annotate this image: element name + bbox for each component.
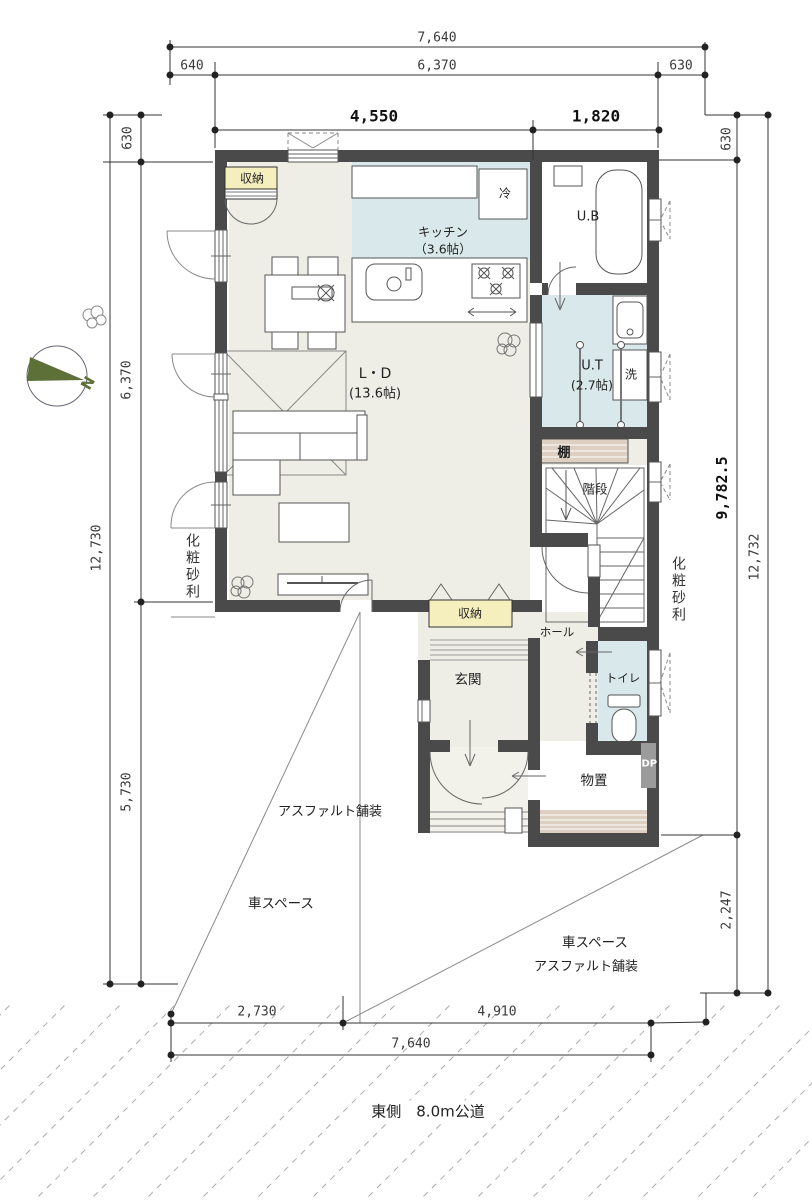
dim-left-top: 630 — [121, 126, 136, 149]
dim-left-total: 12,730 — [90, 525, 105, 572]
room-label-dp: DP — [642, 759, 655, 770]
room-label-fridge: 冷 — [499, 185, 511, 202]
room-label-washer: 洗 — [625, 366, 637, 383]
compass — [27, 306, 106, 406]
dim-right-top: 630 — [720, 127, 735, 150]
dim-top-mid: 6,370 — [417, 59, 456, 74]
room-label-ut: U.T — [581, 359, 603, 374]
site-label-asphalt-right: アスファルト舗装 — [534, 956, 638, 975]
dim-right-total: 12,732 — [748, 534, 763, 581]
dim-left-bottom: 5,730 — [120, 772, 135, 811]
dim-bottom-right: 4,910 — [477, 1005, 516, 1020]
dim-building-left: 4,550 — [350, 107, 398, 126]
floor-plan-drawing — [0, 0, 812, 1200]
site-label-car-right: 車スペース — [562, 931, 628, 951]
floor-plan: 7,640 640 6,370 630 4,550 1,820 630 6,37… — [0, 0, 812, 1200]
room-label-closet-top: 収納 — [240, 170, 264, 187]
room-label-kitchen-size: （3.6帖） — [414, 239, 471, 258]
site-label-gravel-left: 化粧砂利 — [182, 533, 202, 601]
dim-top-right: 630 — [669, 59, 692, 74]
room-label-stairs: 階段 — [582, 479, 607, 498]
site-label-car-left: 車スペース — [248, 892, 314, 912]
dim-right-mid: 9,782.5 — [713, 456, 731, 519]
room-label-entrance: 玄関 — [455, 668, 482, 688]
room-label-ub: U.B — [577, 210, 600, 225]
room-label-ld: L・D — [359, 363, 392, 383]
dim-right-bottom: 2,247 — [720, 890, 735, 929]
site-label-road: 東側 8.0m公道 — [366, 1101, 489, 1122]
dim-top-left: 640 — [180, 59, 203, 74]
dim-bottom-total: 7,640 — [391, 1037, 430, 1052]
site-label-asphalt-left: アスファルト舗装 — [278, 801, 382, 820]
room-label-ut-size: (2.7帖) — [571, 375, 613, 394]
dim-bottom-left: 2,730 — [237, 1005, 276, 1020]
room-label-closet-hall: 収納 — [458, 605, 482, 622]
room-label-shelf: 棚 — [557, 442, 570, 461]
dim-building-right: 1,820 — [572, 107, 620, 126]
room-label-toilet: トイレ — [606, 670, 641, 686]
dim-left-mid: 6,370 — [120, 360, 135, 399]
room-label-ld-size: (13.6帖) — [349, 383, 401, 402]
site-label-gravel-right: 化粧砂利 — [668, 556, 688, 624]
room-label-hall: ホール — [540, 624, 575, 640]
room-label-shed: 物置 — [581, 769, 608, 789]
dim-top-total: 7,640 — [417, 31, 456, 46]
